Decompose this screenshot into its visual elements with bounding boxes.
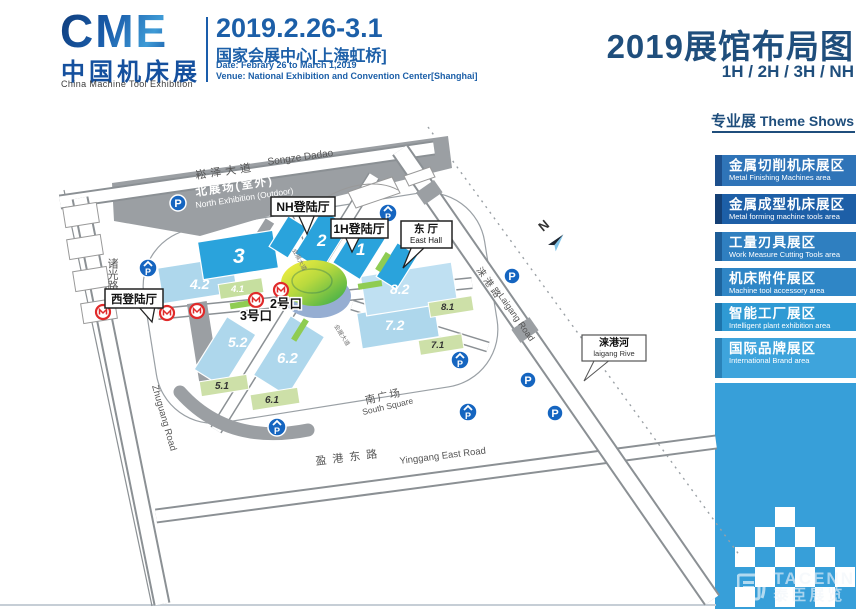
hall-3-label: 3: [233, 245, 245, 268]
svg-text:P: P: [145, 267, 151, 277]
hall-8-1-label: 8.1: [441, 302, 454, 313]
metro-station-icon: [249, 293, 263, 307]
east-hall-callout: 东 厅 East Hall: [401, 221, 452, 268]
metro-station-icon: [274, 283, 288, 297]
exhibition-map: 崧泽大道 Songze Dadao 北展场(室外) North Exhibiti…: [0, 0, 858, 609]
hall-5-1-label: 5.1: [215, 381, 229, 392]
hall-2-label: 2: [316, 231, 327, 250]
svg-text:P: P: [174, 198, 181, 210]
svg-text:NH登陆厅: NH登陆厅: [276, 199, 329, 214]
hall-1-label: 1: [356, 240, 365, 259]
laigang-road: [400, 150, 712, 600]
hall-6-1-label: 6.1: [265, 395, 279, 406]
gate-2-label: 2号口: [270, 296, 302, 311]
hall-7-1-label: 7.1: [431, 340, 444, 351]
parking-entrance-icon: P: [451, 351, 469, 369]
expo-avenue-label: 会展大道: [332, 323, 352, 348]
svg-text:东 厅: 东 厅: [414, 222, 438, 235]
laigang-river-callout: 涞港河 laigang Rive: [582, 335, 646, 381]
parking-icon: P: [547, 405, 563, 421]
parking-entrance-icon: P: [139, 259, 157, 277]
hall-4-2-label: 4.2: [189, 276, 210, 292]
compass-north: N: [535, 217, 567, 252]
hall-7-2-label: 7.2: [385, 317, 405, 333]
hall-8-2-label: 8.2: [390, 281, 410, 297]
svg-text:1H登陆厅: 1H登陆厅: [333, 221, 384, 236]
hall-4-1-label: 4.1: [230, 284, 244, 295]
parking-entrance-icon: P: [268, 418, 286, 436]
gate-3-label: 3号口: [240, 308, 272, 323]
svg-text:East Hall: East Hall: [410, 236, 442, 245]
svg-text:P: P: [508, 271, 515, 283]
hall-5-2-label: 5.2: [228, 334, 248, 350]
parking-icon: P: [170, 195, 186, 211]
yinggang-road-label-cn: 盈港东路: [315, 447, 384, 468]
svg-text:P: P: [457, 359, 463, 369]
svg-text:P: P: [465, 411, 471, 421]
metro-station-icon: [190, 304, 204, 318]
hall-6-2-label: 6.2: [277, 350, 299, 367]
parking-icon: P: [504, 268, 520, 284]
svg-text:P: P: [274, 426, 280, 436]
zhuguang-road-label-cn: 诸光路: [106, 258, 119, 292]
yinggang-road-label-en: Yinggang East Road: [399, 445, 486, 466]
parking-entrance-icon: P: [459, 403, 477, 421]
flyer-page: CME 中国机床展 China Machine Tool Exhibition …: [0, 0, 858, 609]
parking-icon: P: [520, 372, 536, 388]
svg-text:P: P: [551, 408, 558, 420]
svg-text:西登陆厅: 西登陆厅: [111, 292, 157, 306]
svg-text:涞港河: 涞港河: [599, 336, 629, 349]
svg-text:P: P: [524, 375, 531, 387]
svg-text:laigang Rive: laigang Rive: [593, 349, 634, 358]
svg-text:N: N: [535, 217, 552, 235]
